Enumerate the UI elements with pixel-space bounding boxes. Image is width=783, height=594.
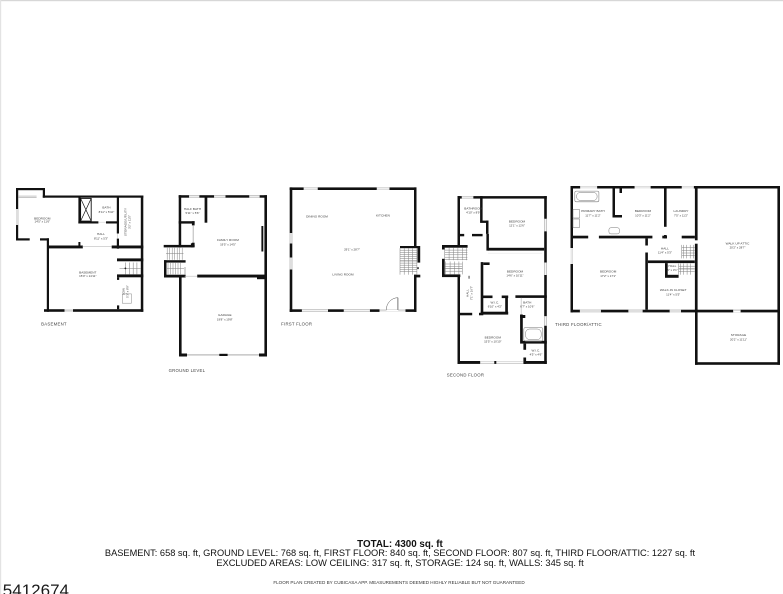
svg-text:14'5" x 11'6": 14'5" x 11'6" bbox=[34, 220, 50, 224]
svg-text:5412674: 5412674 bbox=[3, 581, 69, 594]
svg-text:11'4" x 5'3": 11'4" x 5'3" bbox=[658, 250, 672, 254]
svg-text:FIRST FLOOR: FIRST FLOOR bbox=[281, 322, 312, 327]
svg-text:FAMILY ROOM: FAMILY ROOM bbox=[217, 238, 239, 242]
svg-text:5'3" x 8'9": 5'3" x 8'9" bbox=[126, 285, 130, 298]
svg-text:11'7" x 11'2": 11'7" x 11'2" bbox=[585, 213, 600, 217]
svg-text:BASEMENT: BASEMENT bbox=[41, 322, 67, 327]
svg-text:15'0" x 14'11": 15'0" x 14'11" bbox=[79, 274, 96, 278]
svg-text:FLOOR PLAN CREATED BY CUBICASA: FLOOR PLAN CREATED BY CUBICASA APP. MEAS… bbox=[273, 580, 525, 585]
svg-text:5'11" x 5'6": 5'11" x 5'6" bbox=[185, 211, 199, 215]
svg-text:8'11" x 5'3": 8'11" x 5'3" bbox=[94, 236, 108, 240]
svg-text:GROUND LEVEL: GROUND LEVEL bbox=[169, 368, 206, 373]
svg-text:11'4" x 5'5": 11'4" x 5'5" bbox=[666, 292, 680, 296]
svg-text:7'5" x 11'2": 7'5" x 11'2" bbox=[674, 213, 688, 217]
svg-text:10'3" x 11'2": 10'3" x 11'2" bbox=[635, 213, 651, 217]
svg-text:19'5" x 14'5": 19'5" x 14'5" bbox=[220, 242, 236, 246]
svg-text:14'6" x 10'11": 14'6" x 10'11" bbox=[506, 273, 523, 277]
svg-text:15'5" x 10'10": 15'5" x 10'10" bbox=[484, 339, 501, 343]
svg-text:17'2" x 17'1": 17'2" x 17'1" bbox=[600, 274, 616, 278]
svg-text:19'8" x 19'8": 19'8" x 19'8" bbox=[217, 317, 233, 321]
svg-text:6'7" x 10'6": 6'7" x 10'6" bbox=[520, 305, 534, 309]
svg-text:EXCLUDED AREAS: LOW CEILING: 3: EXCLUDED AREAS: LOW CEILING: 317 sq. ft,… bbox=[216, 558, 584, 568]
svg-text:SECOND FLOOR: SECOND FLOOR bbox=[447, 373, 484, 378]
svg-text:6'10" x 4'2": 6'10" x 4'2" bbox=[488, 305, 502, 309]
svg-text:12'1" x 12'6": 12'1" x 12'6" bbox=[509, 224, 525, 228]
svg-text:20'2" x 11'11": 20'2" x 11'11" bbox=[730, 337, 747, 341]
svg-text:KITCHEN: KITCHEN bbox=[376, 214, 390, 218]
svg-text:5" x 3'1": 5" x 3'1" bbox=[667, 268, 677, 272]
svg-text:20'2" x 28'7": 20'2" x 28'7" bbox=[730, 245, 746, 249]
svg-text:4'10" x 8'9": 4'10" x 8'9" bbox=[466, 211, 480, 215]
svg-text:LIVING ROOM: LIVING ROOM bbox=[332, 273, 354, 277]
svg-text:29'1" x 28'7": 29'1" x 28'7" bbox=[344, 248, 360, 252]
svg-text:DINING ROOM: DINING ROOM bbox=[306, 215, 328, 219]
svg-text:BASEMENT: 658 sq. ft, GROUND L: BASEMENT: 658 sq. ft, GROUND LEVEL: 768 … bbox=[105, 548, 696, 558]
svg-text:7'1" x 16'7": 7'1" x 16'7" bbox=[470, 286, 474, 300]
svg-text:3'2" x 11'5": 3'2" x 11'5" bbox=[128, 215, 132, 229]
svg-text:8'11" x 5'10": 8'11" x 5'10" bbox=[99, 210, 115, 214]
svg-text:4'5" x 4'6": 4'5" x 4'6" bbox=[530, 353, 543, 357]
svg-text:THIRD FLOOR/ATTIC: THIRD FLOOR/ATTIC bbox=[555, 322, 602, 327]
